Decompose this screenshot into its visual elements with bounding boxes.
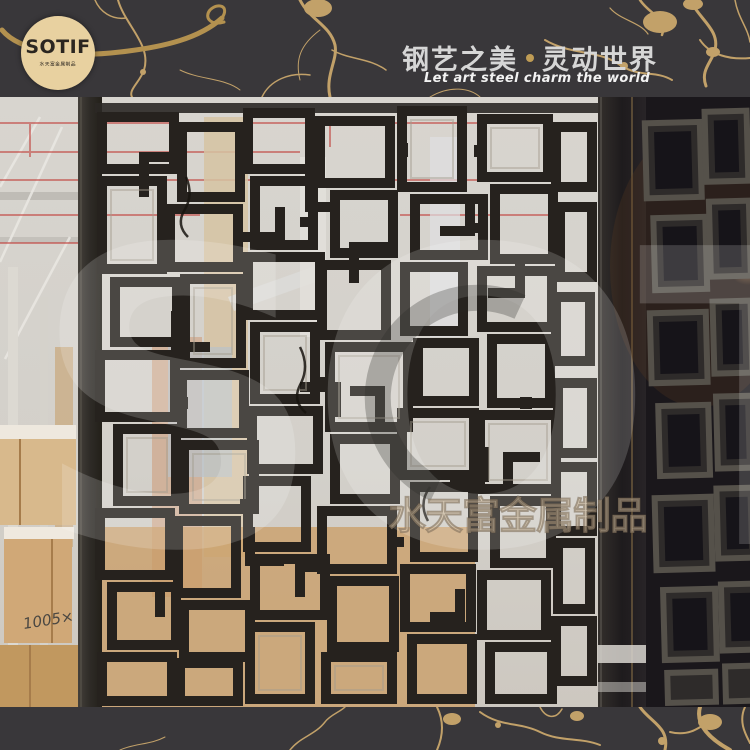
product-image: SOTIF 水天富金属制品 钢艺之美 灵动世界 Let art steel ch… [0,0,750,750]
marble-veins-bottom [0,707,750,750]
watermarks: SOTIF 水天富金属制品 [30,163,750,641]
footer-band [0,707,750,750]
light-streak [598,682,648,692]
brand-logo-text: SOTIF [25,38,90,57]
gold-dot-icon [526,54,534,62]
watermark-company-text: 水天富金属制品 [388,494,647,538]
brand-logo: SOTIF 水天富金属制品 [21,16,95,90]
brand-logo-subtext: 水天富金属制品 [40,60,76,67]
screen-top-rail [95,103,600,113]
light-streak [598,645,648,663]
header-band: SOTIF 水天富金属制品 钢艺之美 灵动世界 Let art steel ch… [0,0,750,97]
product-photo: 1005× [0,97,750,707]
slogan-en: Let art steel charm the world [424,71,650,86]
